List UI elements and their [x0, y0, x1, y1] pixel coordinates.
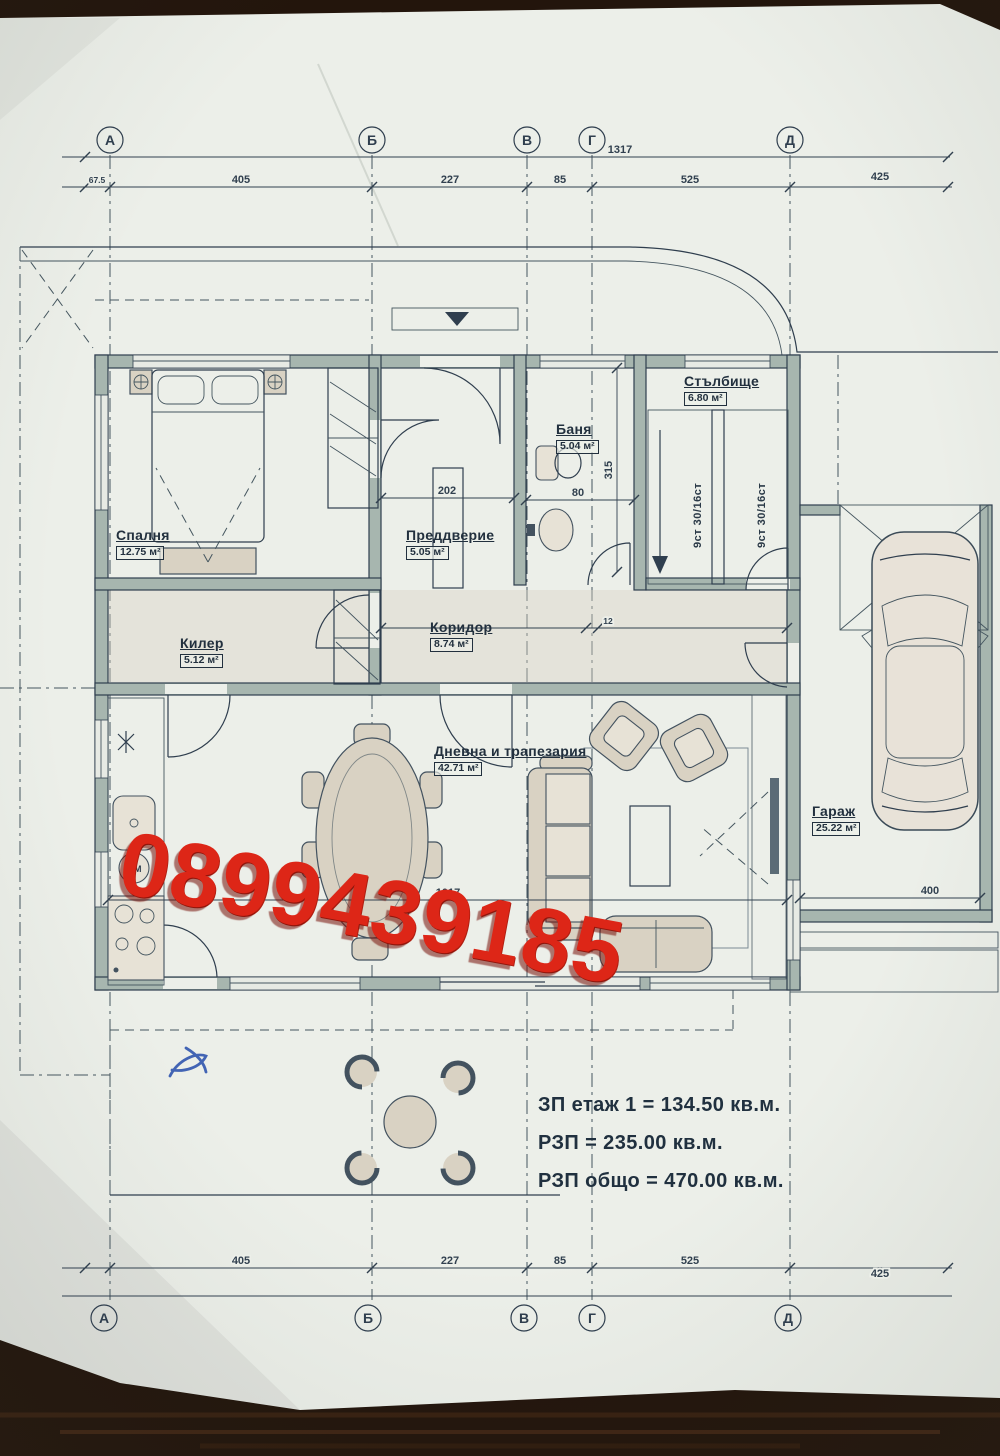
svg-text:425: 425	[871, 171, 889, 183]
svg-text:227: 227	[441, 174, 459, 186]
svg-text:525: 525	[681, 174, 699, 186]
window-icon	[540, 355, 625, 368]
window-icon	[95, 852, 108, 907]
svg-text:525: 525	[681, 1255, 699, 1267]
svg-text:Д: Д	[783, 1310, 793, 1326]
svg-text:В: В	[522, 132, 532, 148]
tv-icon	[770, 778, 779, 874]
svg-text:Д: Д	[785, 132, 795, 148]
floorplan-drawing: MM	[0, 0, 1000, 1456]
patio-chair-icon	[347, 1153, 377, 1183]
room-label-living-dining: Дневна и трапезария 42.71 м²	[434, 744, 586, 776]
svg-text:В: В	[519, 1310, 529, 1326]
window-icon	[95, 395, 108, 510]
summary-line-grand-total: РЗП общо = 470.00 кв.м.	[538, 1170, 784, 1193]
stair-flight-label: 9ст 30/16ст	[756, 483, 768, 548]
room-label-corridor: Коридор 8.74 м²	[430, 620, 492, 652]
summary-line-floor: ЗП етаж 1 = 134.50 кв.м.	[538, 1094, 784, 1117]
room-label-bedroom: Спалня 12.75 м²	[116, 528, 170, 560]
car-icon	[862, 532, 988, 830]
room-label-staircase: Стълбище 6.80 м²	[684, 374, 759, 406]
summary-line-total: РЗП = 235.00 кв.м.	[538, 1132, 784, 1155]
svg-text:Б: Б	[367, 132, 377, 148]
svg-text:Г: Г	[588, 132, 596, 148]
svg-text:А: А	[99, 1310, 109, 1326]
svg-text:67.5: 67.5	[89, 175, 106, 185]
svg-text:Г: Г	[588, 1310, 596, 1326]
patio-table-icon	[384, 1096, 436, 1148]
room-label-storage: Килер 5.12 м²	[180, 636, 224, 668]
patio-chair-icon	[347, 1057, 377, 1087]
window-icon	[230, 977, 360, 990]
window-icon	[787, 880, 800, 960]
patio-chair-icon	[443, 1153, 473, 1183]
paper-sheet	[0, 0, 1000, 1456]
patio-chair-icon	[443, 1063, 473, 1093]
nightstand-icon	[130, 370, 152, 394]
stair-flight-label: 9ст 30/16ст	[692, 483, 704, 548]
svg-text:405: 405	[232, 1255, 250, 1267]
svg-text:315: 315	[603, 461, 615, 479]
nightstand-icon	[264, 370, 286, 394]
room-label-vestibule: Преддверие 5.05 м²	[406, 528, 494, 560]
window-icon	[95, 720, 108, 778]
svg-text:А: А	[105, 132, 115, 148]
svg-text:85: 85	[554, 174, 566, 186]
area-summary: ЗП етаж 1 = 134.50 кв.м. РЗП = 235.00 кв…	[538, 1094, 784, 1208]
svg-text:Б: Б	[363, 1310, 373, 1326]
room-label-garage: Гараж 25.22 м²	[812, 804, 860, 836]
svg-text:405: 405	[232, 174, 250, 186]
svg-text:85: 85	[554, 1255, 566, 1267]
floorplan-photo: MM	[0, 0, 1000, 1456]
svg-text:1317: 1317	[608, 144, 632, 156]
svg-text:202: 202	[438, 485, 456, 497]
svg-text:12: 12	[603, 616, 613, 626]
svg-text:400: 400	[921, 885, 939, 897]
svg-text:80: 80	[572, 487, 584, 499]
room-label-bathroom: Баня 5.04 м²	[556, 422, 599, 454]
svg-text:227: 227	[441, 1255, 459, 1267]
window-icon	[133, 355, 290, 368]
window-icon	[685, 355, 770, 368]
svg-text:425: 425	[871, 1268, 889, 1280]
